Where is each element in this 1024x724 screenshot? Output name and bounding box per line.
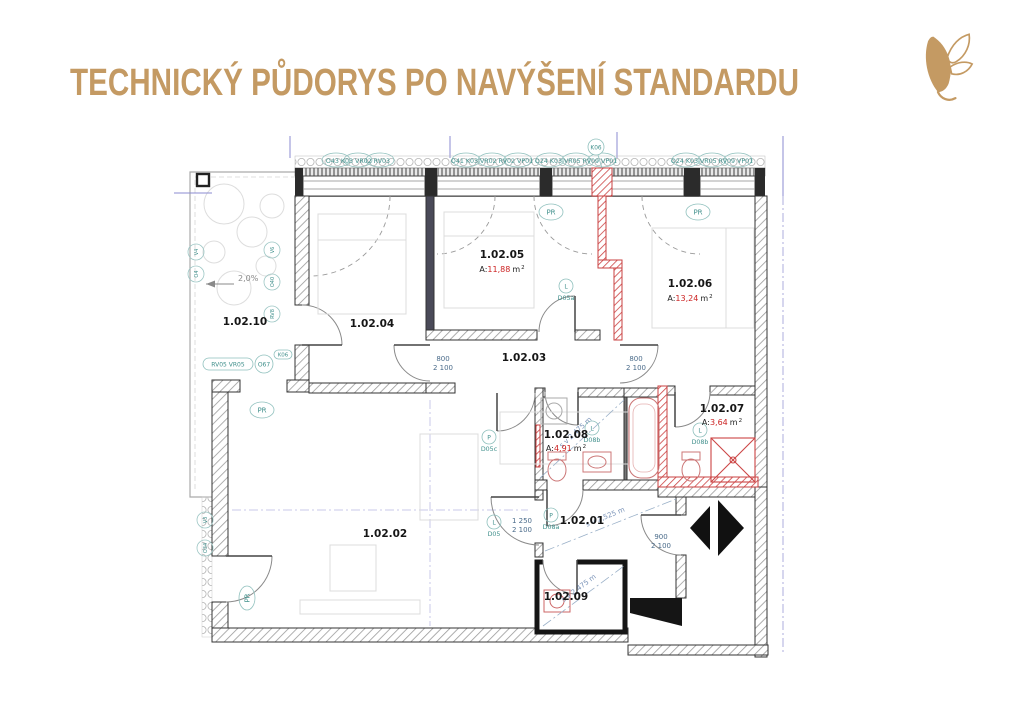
- elevator-arrow-left: [690, 506, 710, 550]
- door-code: D05c: [481, 446, 498, 453]
- edge-code: O4: [194, 270, 200, 277]
- changed-pier: [592, 168, 612, 196]
- elevator-arrow-right: [718, 500, 744, 556]
- dim-width: 900: [654, 533, 667, 541]
- grid-axes: [174, 132, 783, 655]
- edge-code: RV8: [270, 309, 276, 319]
- k06-marker: K06: [590, 146, 601, 152]
- dim-height: 2 100: [626, 364, 646, 372]
- room-label-1-02-02: 1.02.02: [363, 528, 408, 540]
- door-code: D05: [488, 531, 501, 538]
- room-label-1-02-08: 1.02.08: [544, 429, 589, 441]
- ramp-wedge: [630, 598, 682, 626]
- edge-code: V3: [203, 517, 209, 524]
- dim-width: 800: [436, 355, 449, 363]
- sink-108: [583, 452, 611, 472]
- edge-code: O34: [203, 543, 209, 553]
- rv05-marker: RV05 VR05: [211, 362, 245, 369]
- window-label-bubbles: O43 K03 VR02 RV03 O41 K03 VR02 RV02 VP01…: [322, 139, 753, 168]
- door-letter: P: [487, 435, 491, 442]
- door-letter: L: [492, 520, 496, 527]
- window-label: O24 K03 VR05 RV09 VP01: [671, 158, 753, 165]
- slide: TECHNICKÝ PŮDORYS PO NAVÝŠENÍ STANDARDU: [0, 0, 1024, 724]
- dim-height: 2 100: [651, 542, 671, 550]
- edge-code: V6: [270, 247, 276, 254]
- door-letter: L: [564, 284, 568, 291]
- pr-marker: PR: [546, 209, 555, 217]
- door-letter: P: [549, 513, 553, 520]
- door-letter: L: [698, 428, 702, 435]
- plan-markers: PR PR PR PR RV05 VR05 O67 K06 2,0% V6 O4…: [188, 204, 710, 610]
- room-label-1-02-03: 1.02.03: [502, 352, 547, 364]
- room-label-1-02-01: 1.02.01: [560, 515, 605, 527]
- room-label-1-02-07: 1.02.07: [700, 403, 745, 415]
- pr-marker: PR: [693, 209, 702, 217]
- k06-side-marker: K06: [278, 353, 289, 359]
- washer-108: [541, 398, 567, 424]
- room-label-1-02-04: 1.02.04: [350, 318, 395, 330]
- room-label-1-02-09: 1.02.09: [544, 591, 589, 603]
- dim-width: 800: [629, 355, 642, 363]
- door-code: D08a: [543, 524, 560, 531]
- slope-label: 2,0%: [238, 274, 259, 283]
- shower-107: [711, 438, 755, 482]
- terrace-drain-box: [197, 174, 209, 186]
- pr-marker: PR: [257, 407, 266, 415]
- furniture: [300, 212, 754, 614]
- door-code: D05a: [558, 295, 575, 302]
- room-label-1-02-06: 1.02.06: [668, 278, 713, 290]
- pr-marker: PR: [244, 593, 252, 602]
- door-code: D08b: [692, 439, 709, 446]
- room-label-1-02-10: 1.02.10: [223, 316, 268, 328]
- dim-width: 1 250: [512, 517, 532, 525]
- window-label: O41 K03 VR02 RV02 VP01: [451, 158, 533, 165]
- window-label: O43 K03 VR02 RV03: [326, 158, 390, 165]
- floor-plan: O43 K03 VR02 RV03 O41 K03 VR02 RV02 VP01…: [0, 0, 1024, 724]
- room-area-1-02-08: A:4,91m2: [546, 444, 586, 453]
- room-area-1-02-05: A:11,88m2: [479, 265, 524, 274]
- door-letter: L: [590, 426, 594, 433]
- o67-marker: O67: [258, 362, 271, 369]
- dim-height: 2 100: [512, 526, 532, 534]
- elevator-symbol: [690, 500, 744, 556]
- dim-height: 2 100: [433, 364, 453, 372]
- room-area-1-02-07: A:3,64m2: [702, 418, 742, 427]
- window-label: O24 K03 VR05 RV09 VP01: [535, 158, 617, 165]
- edge-code: O40: [270, 277, 276, 287]
- room-label-1-02-05: 1.02.05: [480, 249, 525, 261]
- edge-code: V4: [194, 249, 200, 256]
- room-area-1-02-06: A:13,24m2: [667, 294, 712, 303]
